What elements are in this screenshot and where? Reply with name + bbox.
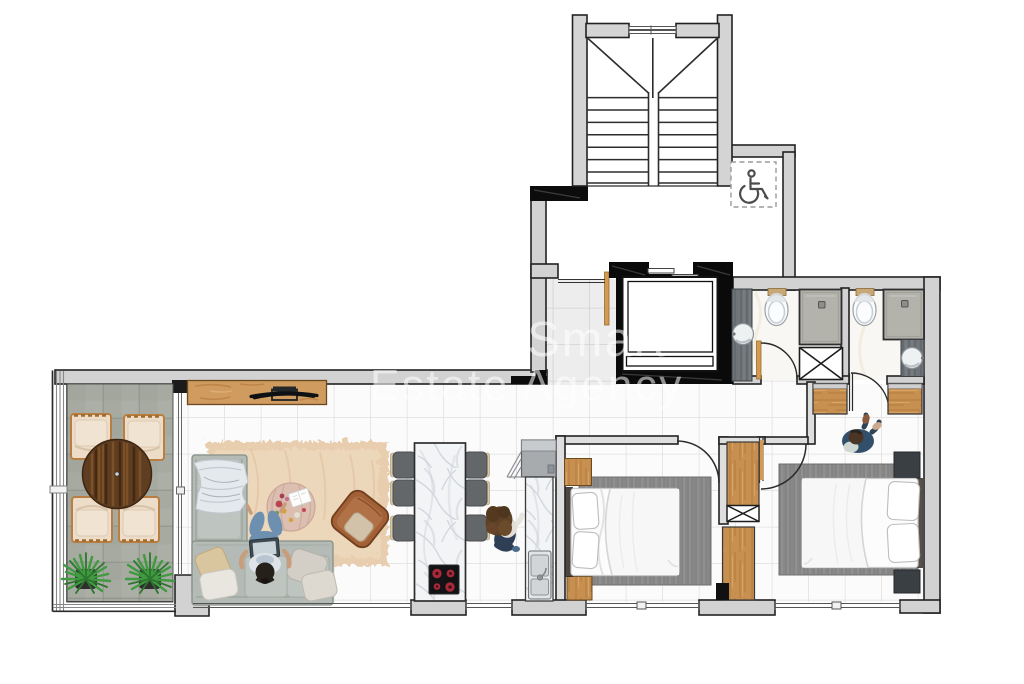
svg-text:Estate Agency: Estate Agency (370, 361, 684, 410)
svg-text:Smart: Smart (527, 313, 668, 367)
